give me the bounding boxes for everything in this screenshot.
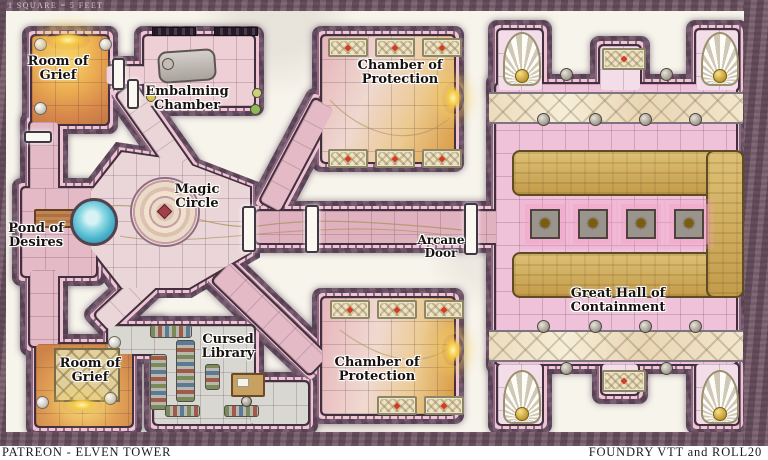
label-line: Room of — [28, 54, 89, 69]
ornate-rug — [422, 149, 462, 168]
credit-right: FOUNDRY VTT and ROLL20 — [589, 445, 762, 460]
containment-pedestal: ✹ — [530, 209, 560, 239]
label-line: Great Hall of — [571, 286, 666, 301]
label-line: Cursed — [202, 332, 253, 347]
ornate-rug — [377, 396, 417, 415]
pond-of-desires-pool — [70, 198, 118, 246]
containment-pedestal: ✹ — [674, 209, 704, 239]
pillar — [537, 113, 550, 126]
label-line: Library — [202, 346, 255, 361]
label-line: Grief — [72, 370, 109, 385]
label-line: Chamber of — [358, 58, 443, 73]
ornate-rug — [424, 396, 464, 415]
label-line: Room of — [60, 356, 121, 371]
bookshelf — [176, 340, 195, 402]
wall-shelf — [152, 27, 196, 36]
label-magic-circle: Magic Circle — [175, 183, 220, 211]
ornate-rug — [602, 370, 646, 392]
pillar — [639, 113, 652, 126]
map-frame-bottom — [0, 432, 768, 446]
door-central-hall-east — [242, 206, 256, 252]
containment-pedestal: ✹ — [626, 209, 656, 239]
label-pond-of-desires: Pond of Desires — [8, 222, 63, 250]
wall-shelf — [214, 27, 258, 36]
bookshelf — [165, 405, 200, 417]
gold-chandelier-glow — [46, 30, 90, 50]
pearl-orb — [108, 336, 121, 349]
pillar — [560, 362, 573, 375]
mosaic-band-top — [489, 92, 743, 124]
rune-star-icon: ✹ — [586, 216, 599, 232]
dungeon-map: ✹ ✹ ✹ ✹ 1 SQUARE = 5 FEET Room of Grief … — [0, 0, 768, 460]
label-line: Chamber — [154, 98, 220, 113]
bookshelf — [205, 364, 220, 390]
ornate-rug — [330, 300, 370, 319]
label-line: Circle — [175, 196, 218, 211]
pearl-orb — [104, 392, 117, 405]
containment-pedestal: ✹ — [578, 209, 608, 239]
fan-ornament — [701, 32, 739, 86]
map-scale-note: 1 SQUARE = 5 FEET — [8, 1, 103, 10]
ornate-rug — [375, 38, 415, 57]
pillar — [589, 320, 602, 333]
rune-star-icon: ✹ — [538, 216, 551, 232]
ornate-rug — [422, 38, 462, 57]
bookshelf — [224, 405, 259, 417]
door-grief-corridor — [112, 58, 125, 90]
label-great-hall: Great Hall of Containment — [571, 287, 666, 315]
mosaic-band-bottom — [489, 330, 743, 362]
pillar — [560, 68, 573, 81]
ornate-rug — [328, 149, 368, 168]
embalming-table-headrest — [162, 58, 174, 70]
door-corridor-mid — [305, 205, 319, 253]
label-embalming-chamber: Embalming Chamber — [145, 85, 228, 113]
pillar — [689, 113, 702, 126]
ornate-rug — [375, 149, 415, 168]
label-line: Pond of — [8, 221, 63, 236]
door-embalming-west — [127, 79, 139, 109]
label-cursed-library: Cursed Library — [202, 333, 255, 361]
ornate-rug — [424, 300, 464, 319]
rune-star-icon: ✹ — [682, 216, 695, 232]
label-chamber-of-protection-bottom: Chamber of Protection — [335, 356, 420, 384]
pearl-orb — [34, 102, 47, 115]
credit-left: PATREON - ELVEN TOWER — [2, 445, 171, 460]
label-line: Embalming — [145, 84, 228, 99]
ornate-rug — [602, 48, 646, 70]
map-frame-right — [744, 0, 768, 446]
label-line: Grief — [40, 68, 77, 83]
pillar — [537, 320, 550, 333]
label-line: Magic — [175, 182, 220, 197]
label-line: Door — [425, 246, 458, 260]
alchemy-jar — [250, 104, 261, 115]
pearl-orb — [99, 38, 112, 51]
bookshelf — [150, 325, 192, 338]
pillar — [589, 113, 602, 126]
label-line: Containment — [571, 300, 666, 315]
credit-bar: PATREON - ELVEN TOWER FOUNDRY VTT and RO… — [0, 446, 768, 460]
pillar — [639, 320, 652, 333]
fan-ornament — [503, 370, 541, 424]
label-room-of-grief-bottom: Room of Grief — [60, 357, 121, 385]
pillar — [660, 362, 673, 375]
label-chamber-of-protection-top: Chamber of Protection — [358, 59, 443, 87]
ornate-rug — [328, 38, 368, 57]
alchemy-jar — [252, 88, 262, 98]
library-chair — [241, 396, 252, 407]
gold-brazier-glow — [442, 334, 464, 366]
label-line: Protection — [339, 369, 416, 384]
map-frame-left — [0, 0, 6, 446]
pearl-orb — [36, 396, 49, 409]
label-line: Protection — [362, 72, 439, 87]
fan-ornament — [503, 32, 541, 86]
label-line: Desires — [9, 235, 63, 250]
gold-brazier-glow — [442, 82, 464, 114]
bookshelf — [150, 354, 167, 410]
label-arcane-door: Arcane Door — [417, 234, 464, 260]
gold-altar-glow — [62, 396, 102, 414]
ornate-rug — [377, 300, 417, 319]
label-line: Chamber of — [335, 355, 420, 370]
golden-dais-east — [706, 150, 744, 298]
door-grief-south — [24, 131, 52, 143]
fan-ornament — [701, 370, 739, 424]
library-desk — [231, 373, 265, 397]
label-room-of-grief-top: Room of Grief — [28, 55, 89, 83]
rune-star-icon: ✹ — [634, 216, 647, 232]
corridor-left-lower-floor — [30, 270, 58, 346]
map-frame-top — [0, 0, 768, 11]
pillar — [660, 68, 673, 81]
label-line: Arcane — [417, 233, 464, 247]
pillar — [689, 320, 702, 333]
arcane-door — [464, 203, 478, 255]
